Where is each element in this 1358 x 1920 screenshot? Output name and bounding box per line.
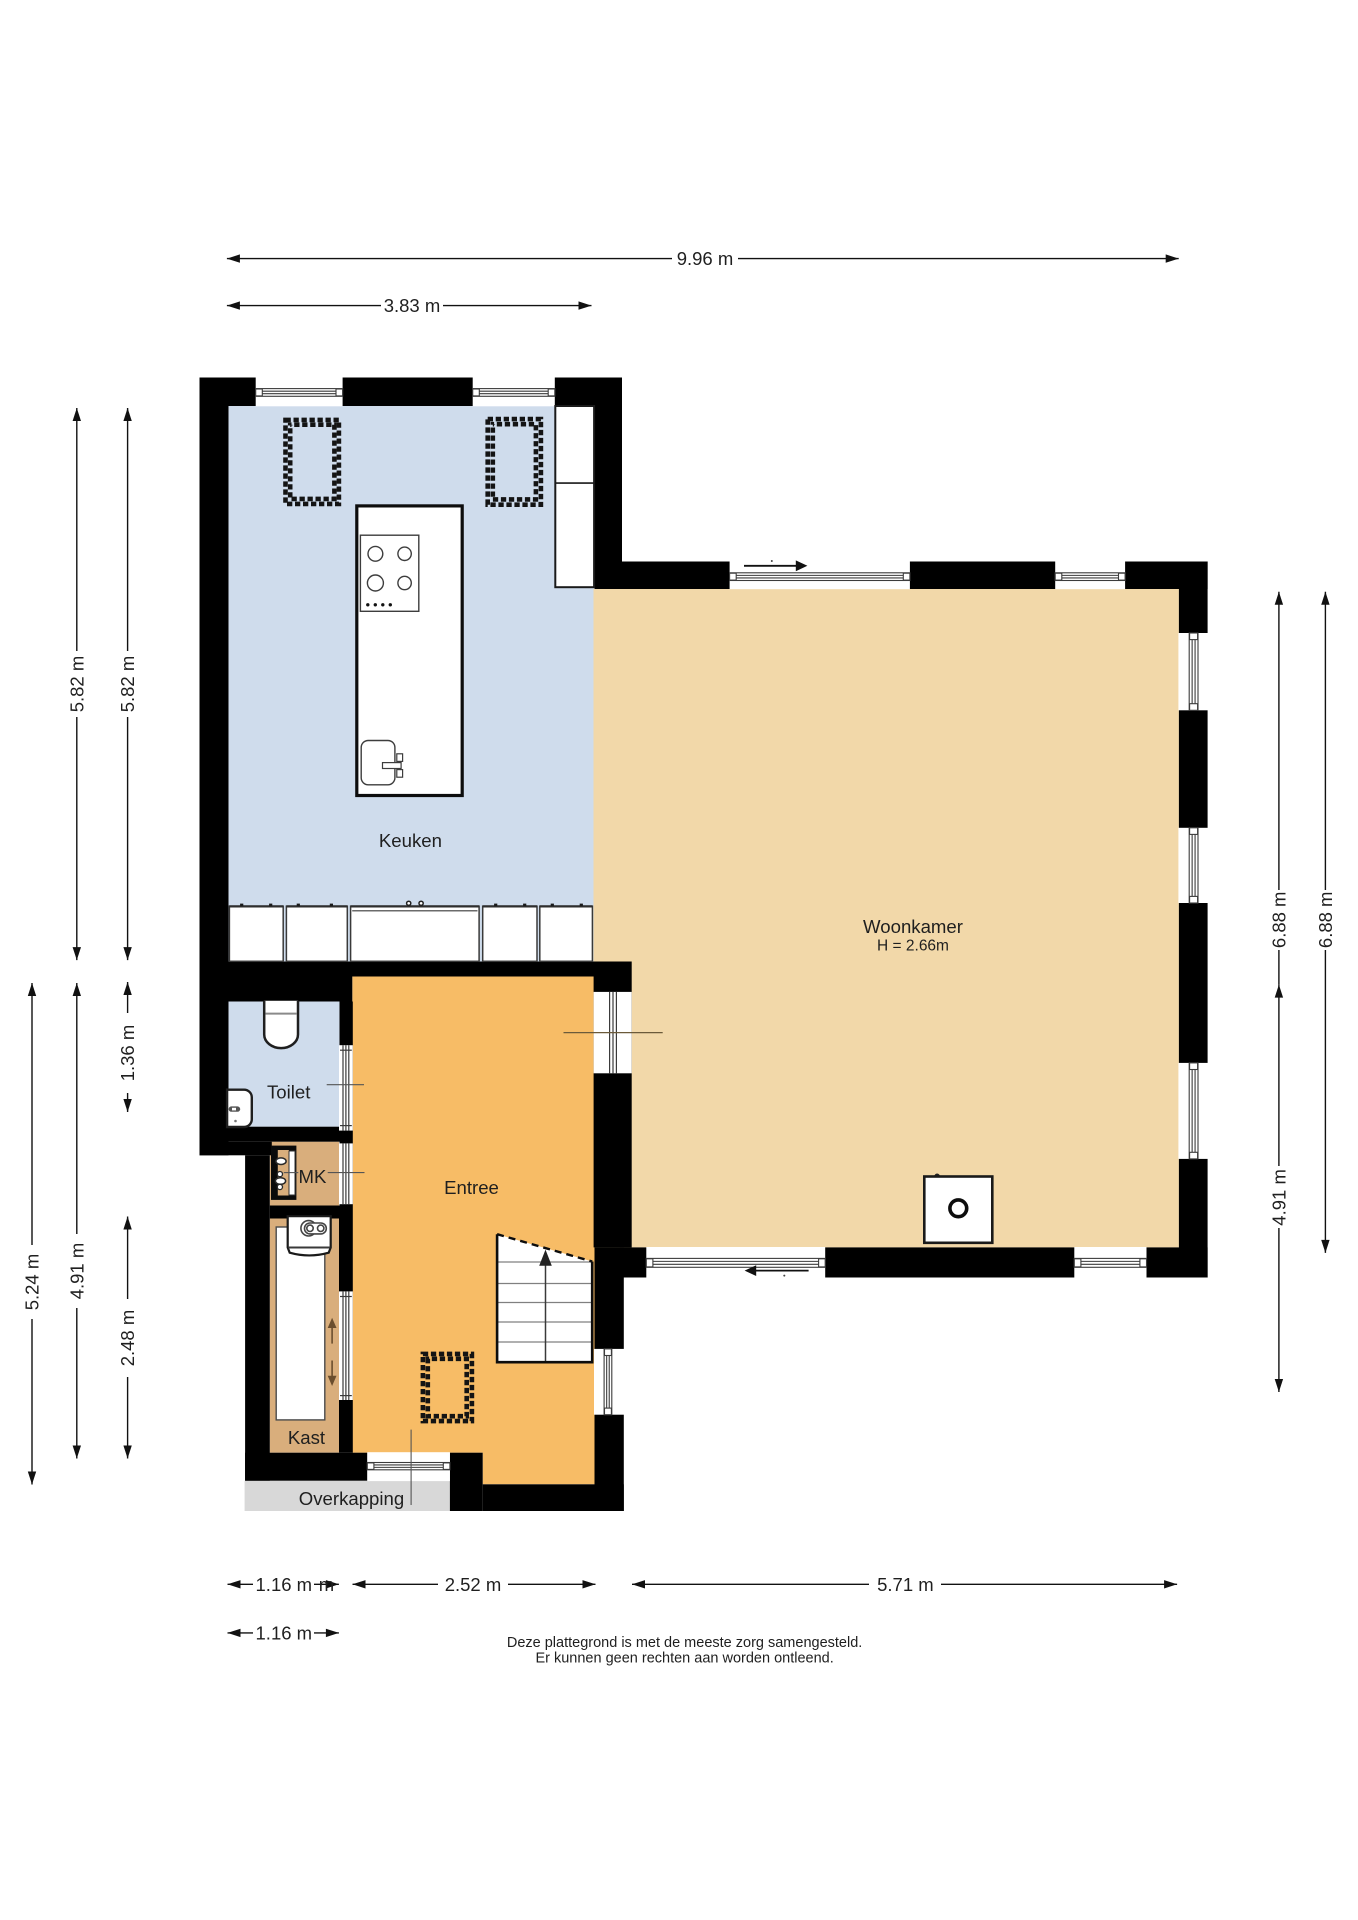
svg-text:Entree: Entree — [444, 1177, 499, 1198]
svg-text:Deze plattegrond is met de mee: Deze plattegrond is met de meeste zorg s… — [507, 1635, 862, 1651]
svg-text:2.48 m: 2.48 m — [117, 1310, 138, 1367]
svg-text:6.88 m: 6.88 m — [1315, 892, 1336, 949]
svg-text:m: m — [319, 1574, 334, 1595]
svg-text:Er kunnen geen rechten aan wor: Er kunnen geen rechten aan worden ontlee… — [535, 1650, 833, 1666]
svg-text:1.16 m: 1.16 m — [256, 1623, 313, 1644]
svg-text:H = 2.66m: H = 2.66m — [877, 938, 949, 955]
svg-text:Keuken: Keuken — [379, 830, 442, 851]
svg-text:5.71 m: 5.71 m — [877, 1574, 934, 1595]
svg-text:5.24 m: 5.24 m — [22, 1254, 43, 1311]
svg-text:6.88 m: 6.88 m — [1269, 892, 1290, 949]
svg-text:5.82 m: 5.82 m — [66, 656, 87, 713]
svg-text:Woonkamer: Woonkamer — [863, 916, 963, 937]
svg-text:4.91 m: 4.91 m — [1269, 1169, 1290, 1226]
svg-text:3.83 m: 3.83 m — [384, 295, 441, 316]
svg-text:Overkapping: Overkapping — [299, 1488, 404, 1509]
svg-text:Kast: Kast — [288, 1427, 326, 1448]
svg-text:1.16 m: 1.16 m — [256, 1574, 313, 1595]
svg-text:1.36 m: 1.36 m — [117, 1025, 138, 1082]
svg-text:Toilet: Toilet — [267, 1081, 311, 1102]
svg-text:9.96 m: 9.96 m — [677, 248, 734, 269]
svg-text:MK: MK — [299, 1166, 327, 1187]
svg-text:5.82 m: 5.82 m — [117, 656, 138, 713]
svg-text:4.91 m: 4.91 m — [66, 1243, 87, 1300]
svg-text:2.52 m: 2.52 m — [445, 1574, 502, 1595]
